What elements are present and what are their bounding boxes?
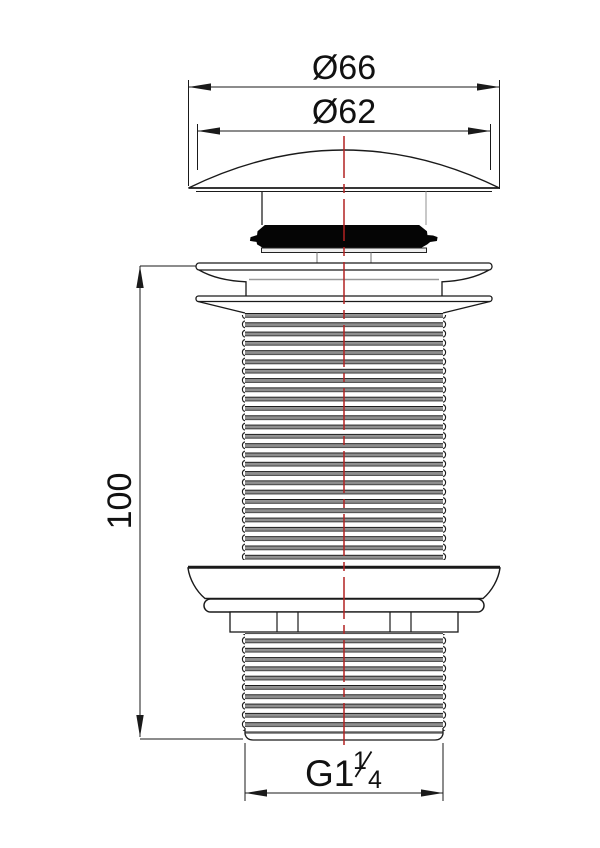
dim-label-inner-diameter: Ø62 [312,93,376,131]
dim-label-outer-diameter: Ø66 [312,49,376,87]
thread-size-prefix: G1 [305,753,354,794]
drawing-svg: Ø66 Ø62 100 G1 1 [0,0,600,848]
dim-label-height: 100 [101,473,139,530]
technical-drawing: Ø66 Ø62 100 G1 1 [0,0,600,848]
thread-size-denominator: 4 [368,766,382,794]
